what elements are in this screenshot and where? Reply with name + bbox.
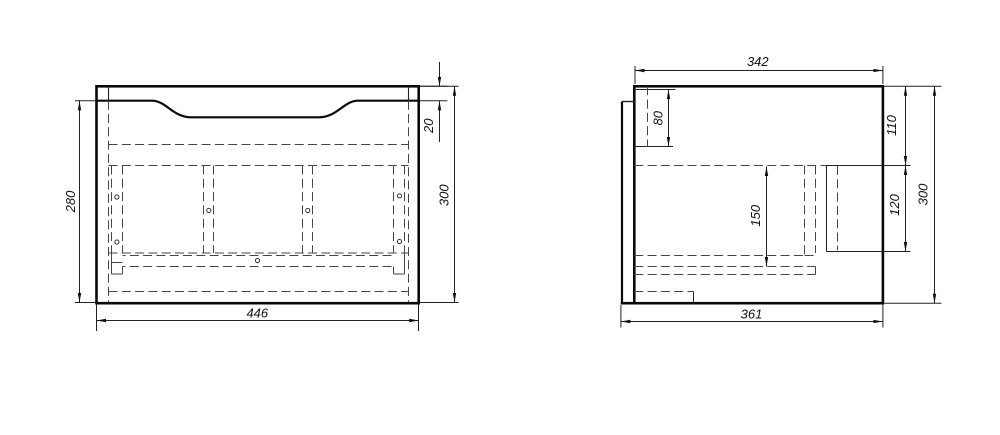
svg-text:150: 150 [748, 204, 763, 226]
svg-text:300: 300 [436, 184, 451, 206]
svg-text:342: 342 [747, 54, 769, 69]
svg-text:20: 20 [421, 118, 436, 134]
svg-text:446: 446 [246, 306, 268, 321]
svg-text:280: 280 [63, 190, 78, 213]
svg-text:80: 80 [651, 110, 666, 125]
svg-text:300: 300 [916, 183, 931, 205]
svg-text:120: 120 [887, 193, 902, 215]
svg-text:361: 361 [741, 307, 763, 322]
svg-text:110: 110 [884, 114, 899, 135]
